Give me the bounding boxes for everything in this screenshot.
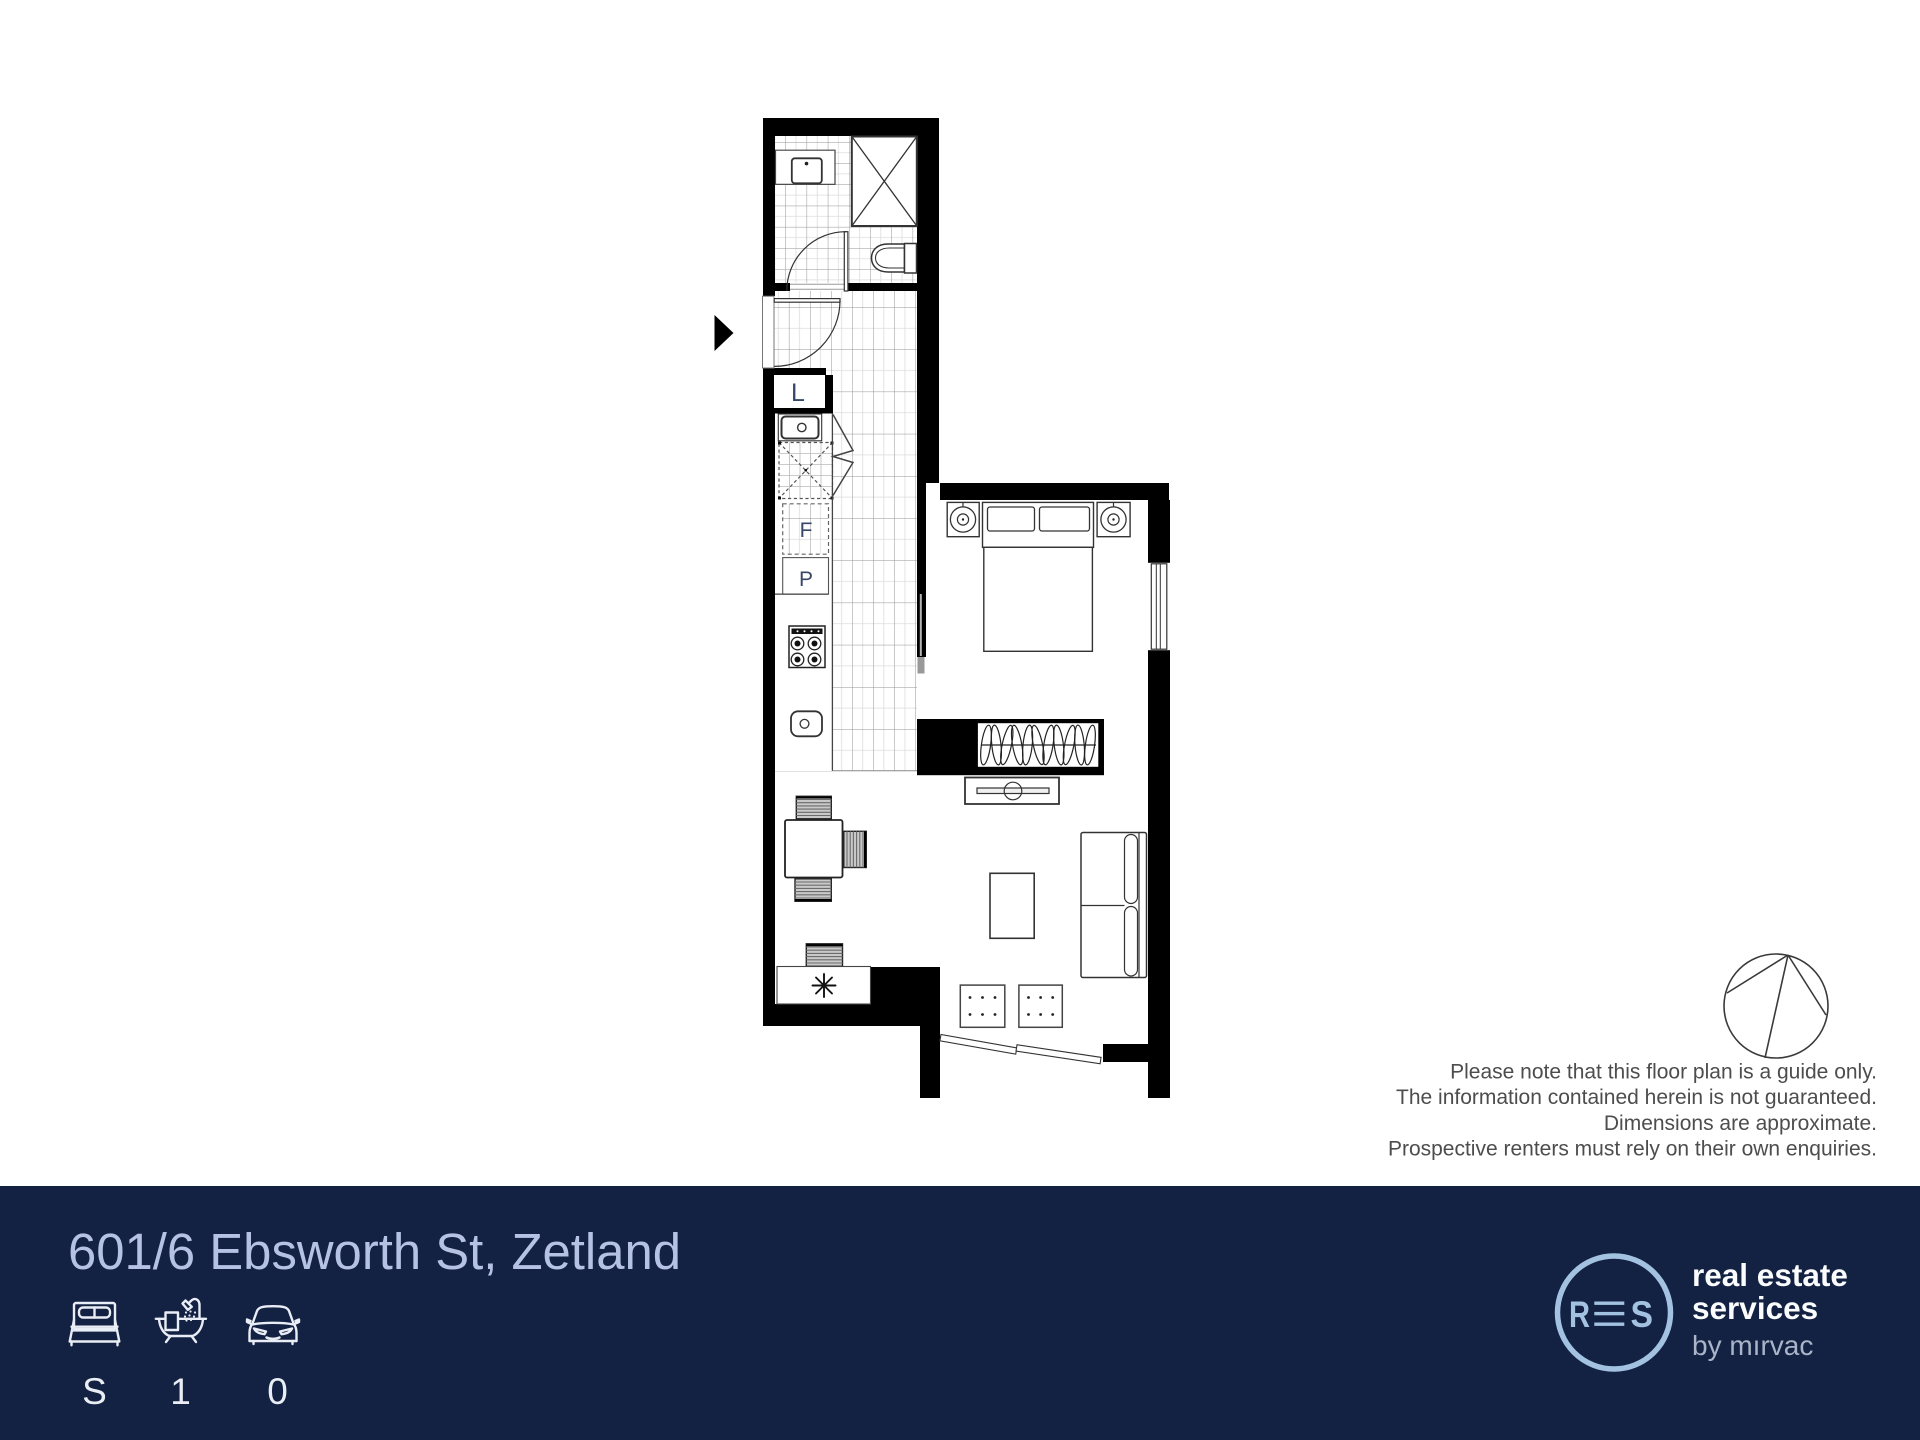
svg-text:services: services	[1692, 1290, 1818, 1326]
svg-text:The information contained here: The information contained herein is not …	[1396, 1086, 1877, 1109]
svg-text:Please note that this floor pl: Please note that this floor plan is a gu…	[1450, 1061, 1877, 1084]
svg-text:S: S	[1631, 1294, 1654, 1335]
svg-text:real estate: real estate	[1692, 1257, 1848, 1293]
svg-text:P: P	[799, 568, 813, 591]
svg-text:R: R	[1569, 1294, 1590, 1335]
svg-text:601/6 Ebsworth St, Zetland: 601/6 Ebsworth St, Zetland	[68, 1223, 681, 1280]
svg-text:L: L	[791, 379, 805, 407]
svg-text:F: F	[800, 519, 813, 542]
svg-text:1: 1	[170, 1371, 191, 1412]
svg-text:by mırvac: by mırvac	[1692, 1330, 1813, 1361]
svg-text:S: S	[82, 1371, 107, 1412]
svg-text:Prospective renters must rely: Prospective renters must rely on their o…	[1388, 1138, 1877, 1161]
svg-text:Dimensions are approximate.: Dimensions are approximate.	[1604, 1112, 1877, 1135]
svg-text:0: 0	[267, 1371, 288, 1412]
